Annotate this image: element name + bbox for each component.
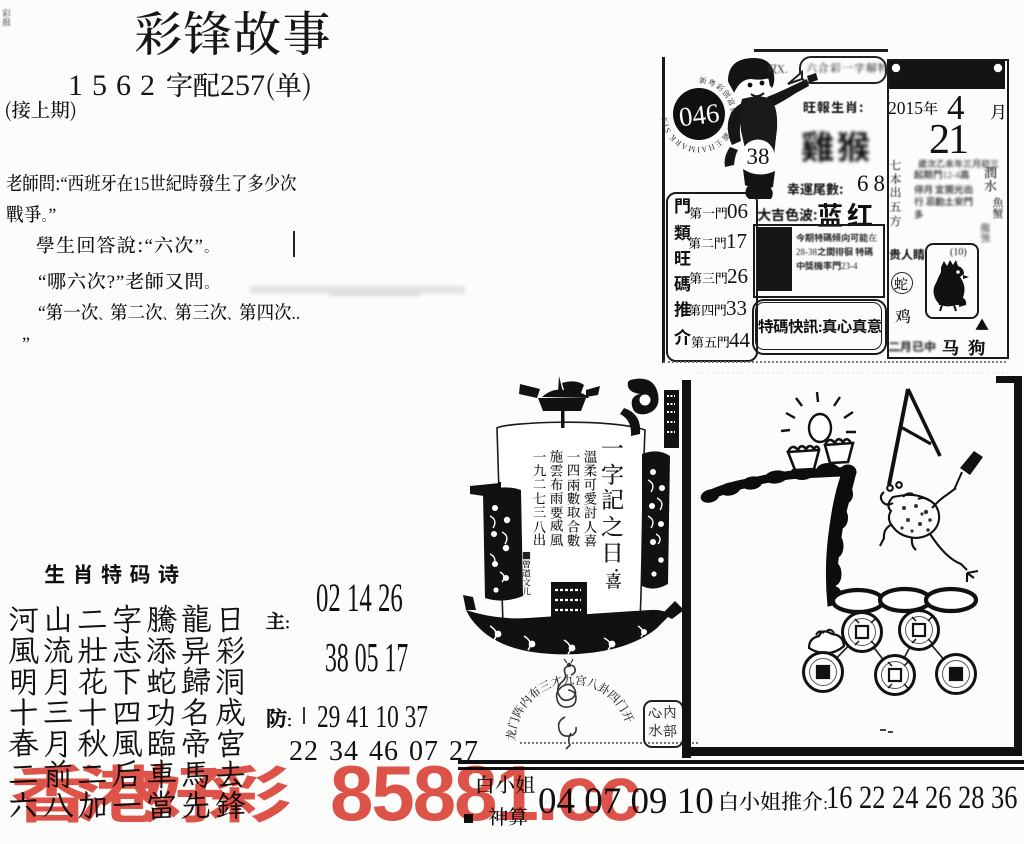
svg-text:38: 38 bbox=[747, 144, 770, 169]
